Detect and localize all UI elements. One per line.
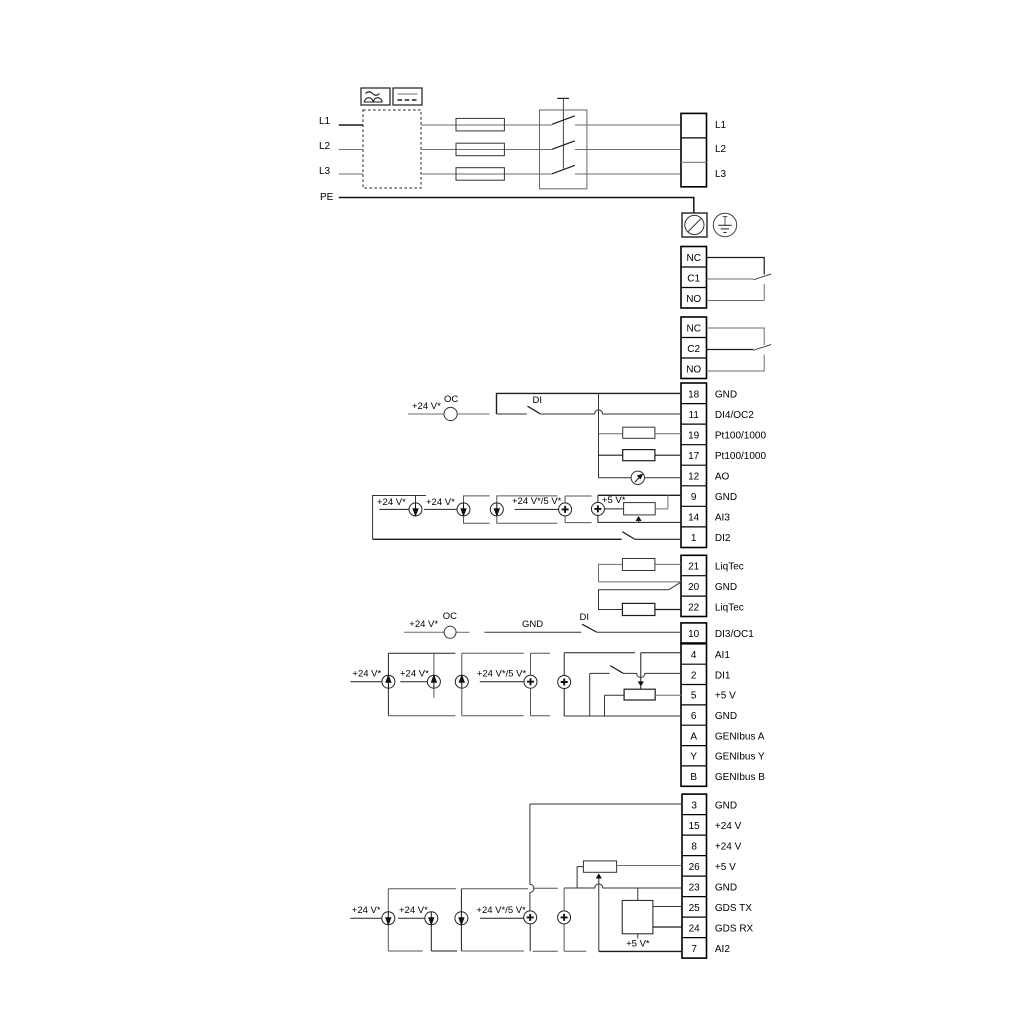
svg-text:OC: OC bbox=[444, 394, 458, 405]
svg-text:+5 V: +5 V bbox=[715, 691, 736, 702]
svg-text:7: 7 bbox=[691, 944, 697, 955]
svg-text:L3: L3 bbox=[715, 169, 727, 180]
svg-text:5: 5 bbox=[691, 691, 697, 702]
svg-text:GND: GND bbox=[715, 582, 737, 593]
svg-text:23: 23 bbox=[689, 882, 701, 893]
svg-text:GENIbus A: GENIbus A bbox=[715, 731, 765, 742]
svg-text:19: 19 bbox=[688, 430, 700, 441]
svg-text:+24 V*: +24 V* bbox=[426, 497, 455, 508]
svg-text:+5 V*: +5 V* bbox=[626, 939, 650, 950]
svg-text:DI: DI bbox=[533, 395, 543, 406]
svg-text:8: 8 bbox=[691, 841, 697, 852]
svg-text:6: 6 bbox=[691, 711, 697, 722]
svg-text:GENIbus B: GENIbus B bbox=[715, 772, 765, 783]
svg-text:GND: GND bbox=[715, 882, 737, 893]
svg-text:+5 V*: +5 V* bbox=[602, 495, 626, 506]
svg-text:11: 11 bbox=[689, 410, 700, 421]
svg-text:NC: NC bbox=[686, 324, 700, 335]
svg-text:A: A bbox=[690, 731, 697, 742]
svg-text:Y: Y bbox=[690, 752, 697, 763]
svg-text:21: 21 bbox=[688, 562, 700, 573]
svg-text:PE: PE bbox=[320, 192, 334, 203]
svg-text:GDS RX: GDS RX bbox=[715, 923, 754, 934]
svg-text:+24 V*: +24 V* bbox=[352, 905, 381, 916]
svg-text:12: 12 bbox=[688, 472, 700, 483]
svg-text:+24 V*: +24 V* bbox=[399, 905, 428, 916]
svg-text:LiqTec: LiqTec bbox=[715, 602, 744, 613]
svg-text:NO: NO bbox=[686, 365, 701, 376]
svg-text:9: 9 bbox=[691, 492, 697, 503]
svg-text:+24 V*/5 V*: +24 V*/5 V* bbox=[477, 668, 527, 679]
svg-text:Pt100/1000: Pt100/1000 bbox=[715, 430, 767, 441]
svg-text:+5 V: +5 V bbox=[715, 862, 736, 873]
svg-text:AI2: AI2 bbox=[715, 944, 730, 955]
svg-text:14: 14 bbox=[688, 513, 700, 524]
svg-text:15: 15 bbox=[689, 821, 701, 832]
svg-text:10: 10 bbox=[688, 629, 700, 640]
svg-text:L2: L2 bbox=[715, 144, 727, 155]
svg-text:+24 V*/5 V*: +24 V*/5 V* bbox=[476, 905, 526, 916]
svg-text:GND: GND bbox=[715, 492, 737, 503]
svg-text:AO: AO bbox=[715, 472, 730, 483]
svg-text:25: 25 bbox=[689, 903, 701, 914]
svg-text:+24 V: +24 V bbox=[715, 841, 742, 852]
svg-text:1: 1 bbox=[691, 533, 697, 544]
svg-text:DI4/OC2: DI4/OC2 bbox=[715, 410, 754, 421]
svg-text:L1: L1 bbox=[715, 120, 727, 131]
svg-text:22: 22 bbox=[688, 602, 700, 613]
svg-text:L1: L1 bbox=[319, 116, 331, 127]
svg-text:C1: C1 bbox=[687, 274, 700, 285]
svg-text:OC: OC bbox=[443, 611, 457, 622]
svg-text:L3: L3 bbox=[319, 166, 331, 177]
svg-text:+24 V*: +24 V* bbox=[412, 401, 441, 412]
svg-text:DI2: DI2 bbox=[715, 533, 731, 544]
svg-text:DI1: DI1 bbox=[715, 670, 731, 681]
svg-text:+24 V*/5 V*: +24 V*/5 V* bbox=[512, 496, 562, 507]
svg-text:18: 18 bbox=[688, 389, 700, 400]
svg-text:+24 V*: +24 V* bbox=[409, 619, 438, 630]
svg-text:GND: GND bbox=[522, 619, 543, 630]
svg-text:26: 26 bbox=[689, 862, 701, 873]
svg-text:GND: GND bbox=[715, 711, 737, 722]
svg-text:4: 4 bbox=[691, 650, 697, 661]
svg-text:+24 V*: +24 V* bbox=[400, 668, 429, 679]
svg-text:+24 V*: +24 V* bbox=[377, 497, 406, 508]
svg-text:AI3: AI3 bbox=[715, 513, 730, 524]
svg-text:GENIbus Y: GENIbus Y bbox=[715, 752, 765, 763]
svg-text:DI3/OC1: DI3/OC1 bbox=[715, 629, 754, 640]
svg-text:17: 17 bbox=[688, 451, 700, 462]
svg-text:NO: NO bbox=[686, 294, 701, 305]
svg-text:Pt100/1000: Pt100/1000 bbox=[715, 451, 767, 462]
svg-text:+24 V*: +24 V* bbox=[352, 668, 381, 679]
svg-text:NC: NC bbox=[686, 253, 700, 264]
svg-text:L2: L2 bbox=[319, 141, 331, 152]
svg-text:DI: DI bbox=[580, 612, 590, 623]
svg-text:AI1: AI1 bbox=[715, 650, 730, 661]
svg-text:+24 V: +24 V bbox=[715, 821, 742, 832]
svg-text:B: B bbox=[690, 772, 697, 783]
svg-text:GND: GND bbox=[715, 389, 737, 400]
svg-text:C2: C2 bbox=[687, 344, 700, 355]
svg-text:3: 3 bbox=[691, 800, 697, 811]
svg-text:GDS TX: GDS TX bbox=[715, 903, 752, 914]
svg-text:GND: GND bbox=[715, 800, 737, 811]
svg-text:LiqTec: LiqTec bbox=[715, 562, 744, 573]
svg-text:2: 2 bbox=[691, 670, 697, 681]
svg-text:24: 24 bbox=[689, 923, 701, 934]
svg-text:20: 20 bbox=[688, 582, 700, 593]
